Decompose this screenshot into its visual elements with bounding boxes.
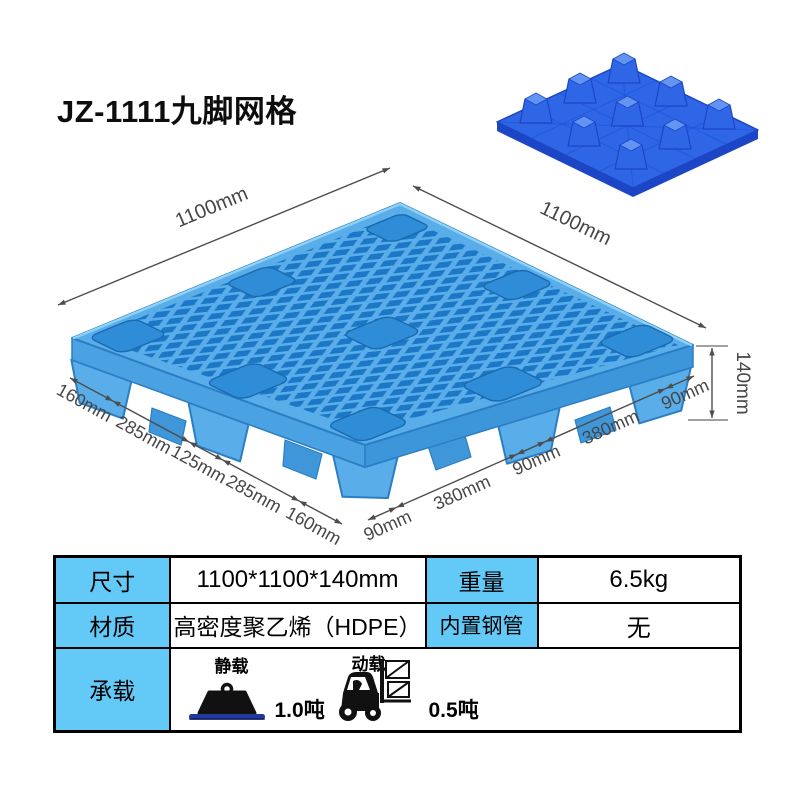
spec-table: 尺寸 1100*1100*140mm 重量 6.5kg 材质 高密度聚乙烯（HD… — [53, 555, 742, 733]
dimension-label-width: 1100mm — [172, 183, 251, 233]
size-label-cell: 尺寸 — [55, 557, 170, 603]
material-value-cell: 高密度聚乙烯（HDPE） — [170, 603, 426, 648]
dimension-label-height: 140mm — [732, 351, 753, 414]
load-value-cell: 静载 1.0吨 动载 — [170, 648, 741, 732]
load-content: 静载 1.0吨 动载 — [171, 649, 740, 730]
dimension-label-depth: 1100mm — [536, 197, 614, 250]
weight-icon — [183, 681, 271, 723]
steel-pipe-value-cell: 无 — [538, 603, 741, 648]
table-row: 材质 高密度聚乙烯（HDPE） 内置钢管 无 — [55, 603, 741, 648]
static-load-value: 1.0吨 — [275, 694, 325, 724]
static-load-label: 静载 — [215, 652, 249, 677]
table-row: 承载 静载 1.0吨 动载 — [55, 648, 741, 732]
forklift-icon — [333, 657, 415, 725]
steel-pipe-label-cell: 内置钢管 — [426, 603, 538, 648]
weight-value-cell: 6.5kg — [538, 557, 741, 603]
load-label-cell: 承载 — [55, 648, 170, 732]
dimension-label: 380mm — [430, 471, 493, 514]
mini-pallet-illustration — [497, 53, 758, 197]
dynamic-load-value: 0.5吨 — [429, 694, 479, 724]
table-row: 尺寸 1100*1100*140mm 重量 6.5kg — [55, 557, 741, 603]
material-label-cell: 材质 — [55, 603, 170, 648]
size-value-cell: 1100*1100*140mm — [170, 557, 426, 603]
pallet-diagram: 1100mm 1100mm 140mm 160mm 285mm 125mm 28… — [0, 0, 800, 560]
weight-label-cell: 重量 — [426, 557, 538, 603]
